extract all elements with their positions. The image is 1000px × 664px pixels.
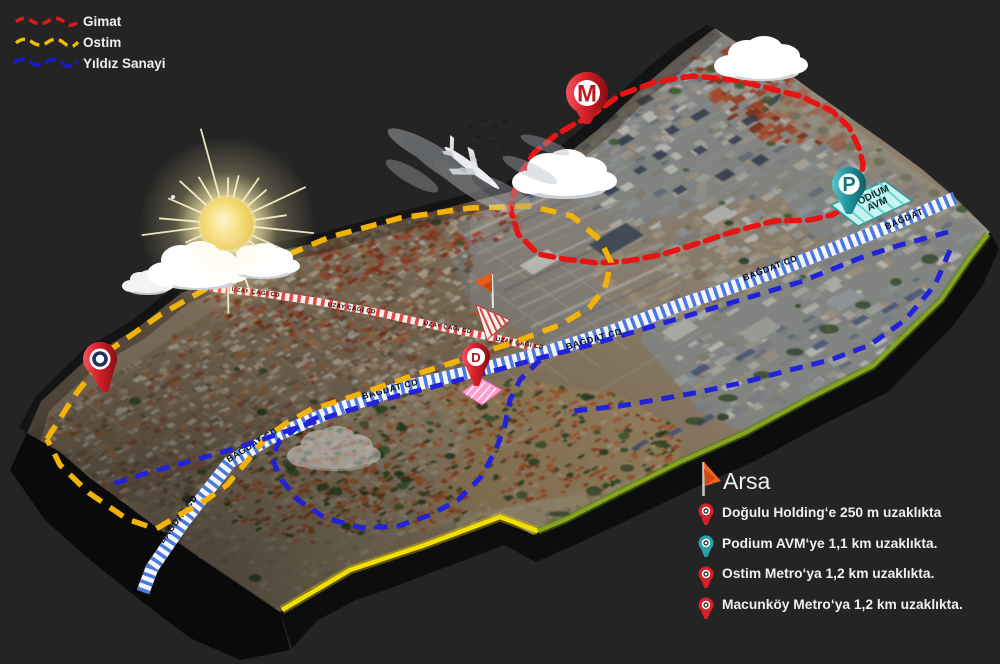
svg-text:Gimat: Gimat: [83, 14, 122, 29]
svg-text:Macunköy Metro‘ya 1,2 km uzak: Macunköy Metro‘ya 1,2 km uzaklıkta.: [722, 597, 963, 612]
svg-text:D: D: [471, 350, 480, 365]
svg-text:Yıldız Sanayi: Yıldız Sanayi: [83, 56, 166, 71]
svg-text:Arsa: Arsa: [723, 468, 771, 494]
svg-text:Ostim: Ostim: [83, 35, 121, 50]
svg-text:Ostim Metro‘ya 1,2 km uzaklıkt: Ostim Metro‘ya 1,2 km uzaklıkta.: [722, 566, 934, 581]
svg-text:M: M: [577, 80, 597, 107]
svg-text:Podium AVM‘ye 1,1 km uzaklıkta: Podium AVM‘ye 1,1 km uzaklıkta.: [722, 536, 937, 551]
svg-text:Doğulu Holding‘e 250 m uzaklık: Doğulu Holding‘e 250 m uzaklıkta: [722, 505, 942, 520]
svg-text:P: P: [842, 174, 855, 196]
